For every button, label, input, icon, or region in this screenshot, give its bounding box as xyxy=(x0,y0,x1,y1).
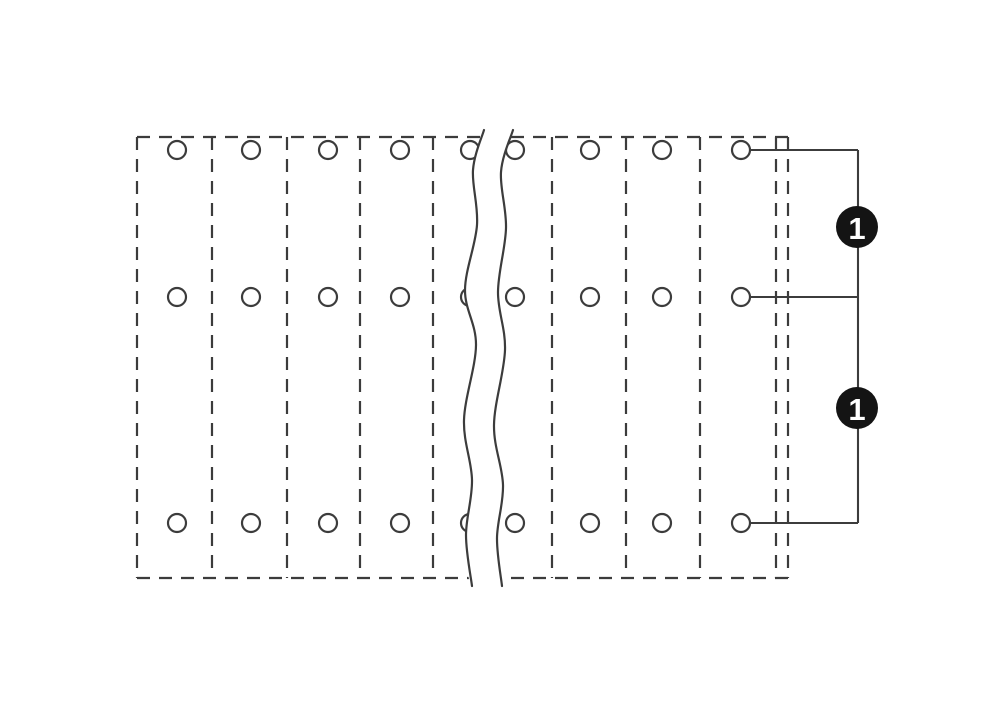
position-badge-label: 1 xyxy=(848,211,865,246)
wire-entry-hole xyxy=(168,514,186,532)
wire-entry-hole xyxy=(168,141,186,159)
wire-entry-hole xyxy=(732,141,750,159)
wire-entry-hole xyxy=(506,288,524,306)
wire-entry-hole xyxy=(653,514,671,532)
wire-entry-hole xyxy=(242,514,260,532)
wire-entry-hole xyxy=(319,141,337,159)
wire-entry-hole xyxy=(168,288,186,306)
terminal-strip-diagram: 11 xyxy=(0,0,1000,711)
wire-entry-hole xyxy=(391,288,409,306)
wire-entry-hole xyxy=(391,514,409,532)
wire-entry-holes xyxy=(168,141,750,532)
drawing-page: 11 xyxy=(0,0,1000,711)
wire-entry-hole xyxy=(581,141,599,159)
wire-entry-hole xyxy=(242,141,260,159)
wire-entry-hole xyxy=(319,288,337,306)
wire-entry-hole xyxy=(732,288,750,306)
wire-entry-hole xyxy=(581,288,599,306)
wire-entry-hole xyxy=(506,514,524,532)
position-callout: 11 xyxy=(750,150,878,523)
housing-outline xyxy=(137,137,788,578)
wire-entry-hole xyxy=(653,141,671,159)
wire-entry-hole xyxy=(732,514,750,532)
wire-entry-hole xyxy=(242,288,260,306)
wire-entry-hole xyxy=(391,141,409,159)
position-badge-label: 1 xyxy=(848,392,865,427)
wire-entry-hole xyxy=(653,288,671,306)
wire-entry-hole xyxy=(581,514,599,532)
wire-entry-hole xyxy=(319,514,337,532)
